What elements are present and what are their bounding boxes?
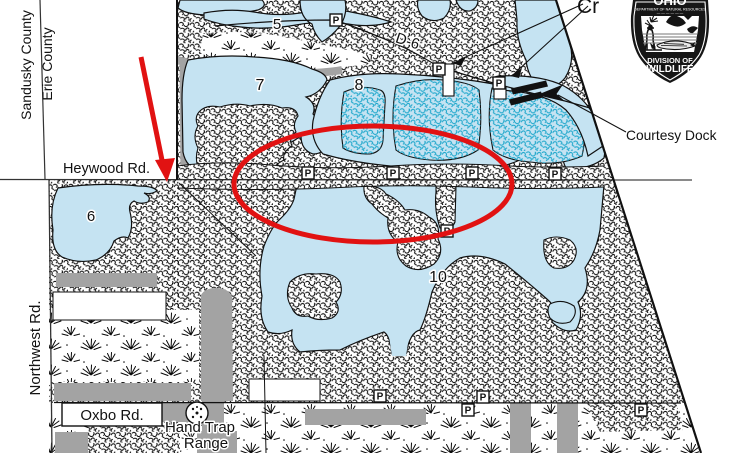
- svg-text:5: 5: [273, 16, 281, 33]
- svg-text:7: 7: [256, 77, 265, 94]
- svg-text:Range: Range: [184, 435, 228, 452]
- svg-text:P: P: [390, 169, 397, 180]
- svg-text:P: P: [465, 406, 472, 417]
- svg-text:Courtesy Dock: Courtesy Dock: [626, 128, 717, 143]
- svg-text:Heywood Rd.: Heywood Rd.: [63, 161, 150, 177]
- svg-text:P: P: [333, 16, 340, 27]
- svg-text:Cr: Cr: [577, 0, 599, 18]
- svg-text:P: P: [377, 392, 384, 403]
- svg-text:P: P: [552, 170, 559, 181]
- svg-text:Sandusky County: Sandusky County: [18, 10, 34, 120]
- svg-text:Northwest Rd.: Northwest Rd.: [27, 300, 44, 395]
- svg-text:6: 6: [87, 208, 95, 225]
- svg-text:8: 8: [355, 77, 364, 94]
- svg-text:P: P: [305, 169, 312, 180]
- svg-text:WILDLIFE: WILDLIFE: [646, 64, 694, 75]
- svg-text:Erie County: Erie County: [39, 27, 55, 100]
- svg-text:Oxbo Rd.: Oxbo Rd.: [80, 407, 143, 424]
- svg-text:P: P: [638, 406, 645, 417]
- svg-text:Hand Trap: Hand Trap: [165, 419, 235, 436]
- svg-text:P: P: [436, 65, 443, 76]
- svg-text:10: 10: [429, 269, 447, 286]
- svg-text:P: P: [469, 169, 476, 180]
- svg-text:P: P: [496, 79, 503, 90]
- svg-text:— — — — — —: — — — — — —: [657, 12, 684, 16]
- svg-text:P: P: [480, 393, 487, 404]
